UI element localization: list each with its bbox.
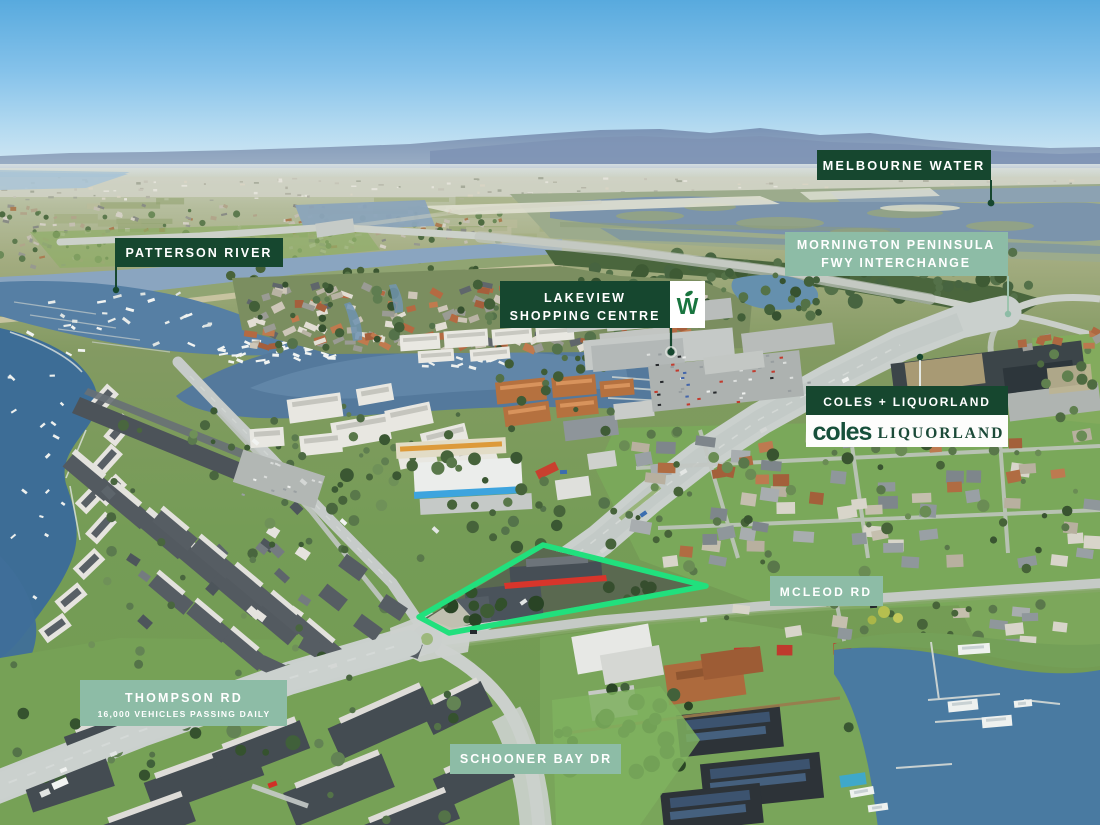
svg-text:MCLEOD RD: MCLEOD RD xyxy=(780,585,872,599)
svg-text:coles: coles xyxy=(813,418,872,446)
svg-text:THOMPSON RD: THOMPSON RD xyxy=(125,691,243,705)
svg-text:SHOPPING CENTRE: SHOPPING CENTRE xyxy=(510,309,661,323)
svg-text:MELBOURNE WATER: MELBOURNE WATER xyxy=(823,158,986,173)
svg-text:PATTERSON RIVER: PATTERSON RIVER xyxy=(126,246,273,260)
svg-text:COLES + LIQUORLAND: COLES + LIQUORLAND xyxy=(823,395,990,409)
svg-text:MORNINGTON PENINSULA: MORNINGTON PENINSULA xyxy=(797,238,995,252)
svg-text:16,000 VEHICLES PASSING DAILY: 16,000 VEHICLES PASSING DAILY xyxy=(98,709,271,719)
svg-text:FWY INTERCHANGE: FWY INTERCHANGE xyxy=(821,256,971,270)
svg-text:LIQUORLAND: LIQUORLAND xyxy=(878,425,1005,442)
svg-text:W: W xyxy=(677,293,699,319)
svg-text:LAKEVIEW: LAKEVIEW xyxy=(544,291,626,305)
svg-text:SCHOONER BAY DR: SCHOONER BAY DR xyxy=(460,752,612,766)
